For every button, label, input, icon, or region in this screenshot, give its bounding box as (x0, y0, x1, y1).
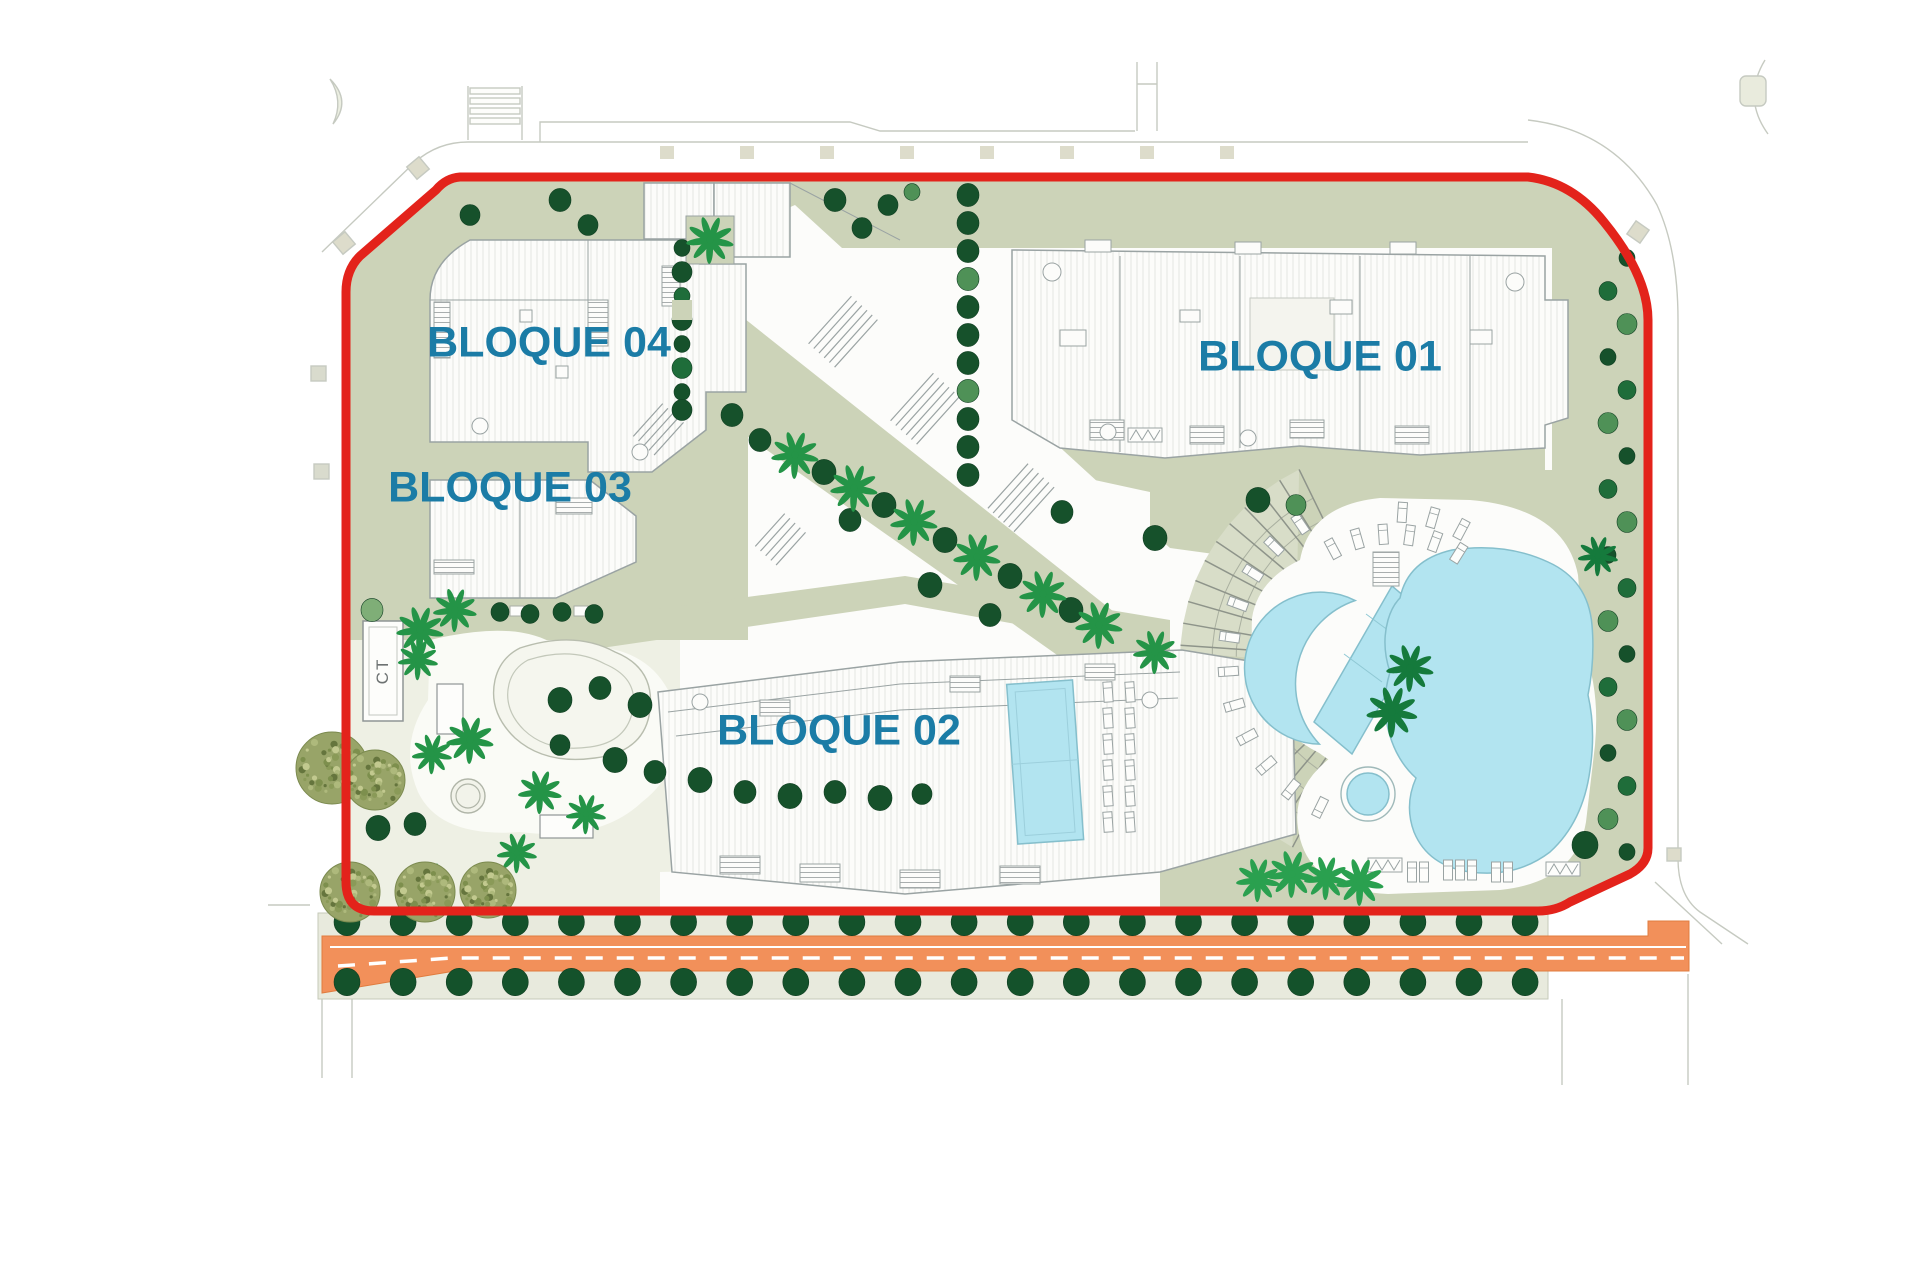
sun-lounger-icon (1125, 786, 1135, 807)
sun-lounger-icon (1103, 734, 1113, 755)
site-plan-canvas (0, 0, 1920, 1280)
bloque-02-label: BLOQUE 02 (717, 707, 961, 756)
olive-tree-icon (345, 750, 405, 810)
sun-lounger-icon (1103, 708, 1113, 729)
sun-lounger-icon (1378, 524, 1388, 545)
bloque-03-label: BLOQUE 03 (388, 464, 632, 513)
sun-lounger-icon (1408, 862, 1417, 882)
spa-pool (1347, 773, 1389, 815)
sun-lounger-icon (1504, 862, 1513, 882)
sun-lounger-icon (1397, 502, 1407, 523)
sun-lounger-icon (1103, 682, 1113, 703)
ct-label: CT (373, 658, 393, 685)
sun-lounger-icon (1125, 734, 1135, 755)
lagoon-pool (1385, 548, 1593, 873)
sun-lounger-icon (1468, 860, 1477, 880)
sun-lounger-icon (1456, 860, 1465, 880)
sun-lounger-icon (1103, 760, 1113, 781)
bloque-04-label: BLOQUE 04 (427, 319, 671, 368)
sun-lounger-icon (1218, 666, 1239, 676)
sun-lounger-icon (1125, 812, 1135, 833)
pool-steps (1373, 552, 1399, 586)
bloque-01-label: BLOQUE 01 (1198, 333, 1442, 382)
sun-lounger-icon (1444, 860, 1453, 880)
sidewalk-planters (660, 146, 1234, 159)
sun-lounger-icon (1125, 708, 1135, 729)
crosswalk (468, 86, 522, 140)
sun-lounger-icon (1420, 862, 1429, 882)
sun-lounger-icon (1103, 786, 1113, 807)
sun-lounger-icon (1103, 812, 1113, 833)
building-bloque-02 (658, 650, 1296, 894)
site-plan: BLOQUE 04 BLOQUE 03 BLOQUE 01 BLOQUE 02 … (0, 0, 1920, 1280)
bloque-02-pool (1007, 680, 1084, 844)
sun-lounger-icon (1125, 682, 1135, 703)
garden-box (437, 684, 463, 734)
sun-lounger-icon (1125, 760, 1135, 781)
sun-lounger-icon (1492, 862, 1501, 882)
